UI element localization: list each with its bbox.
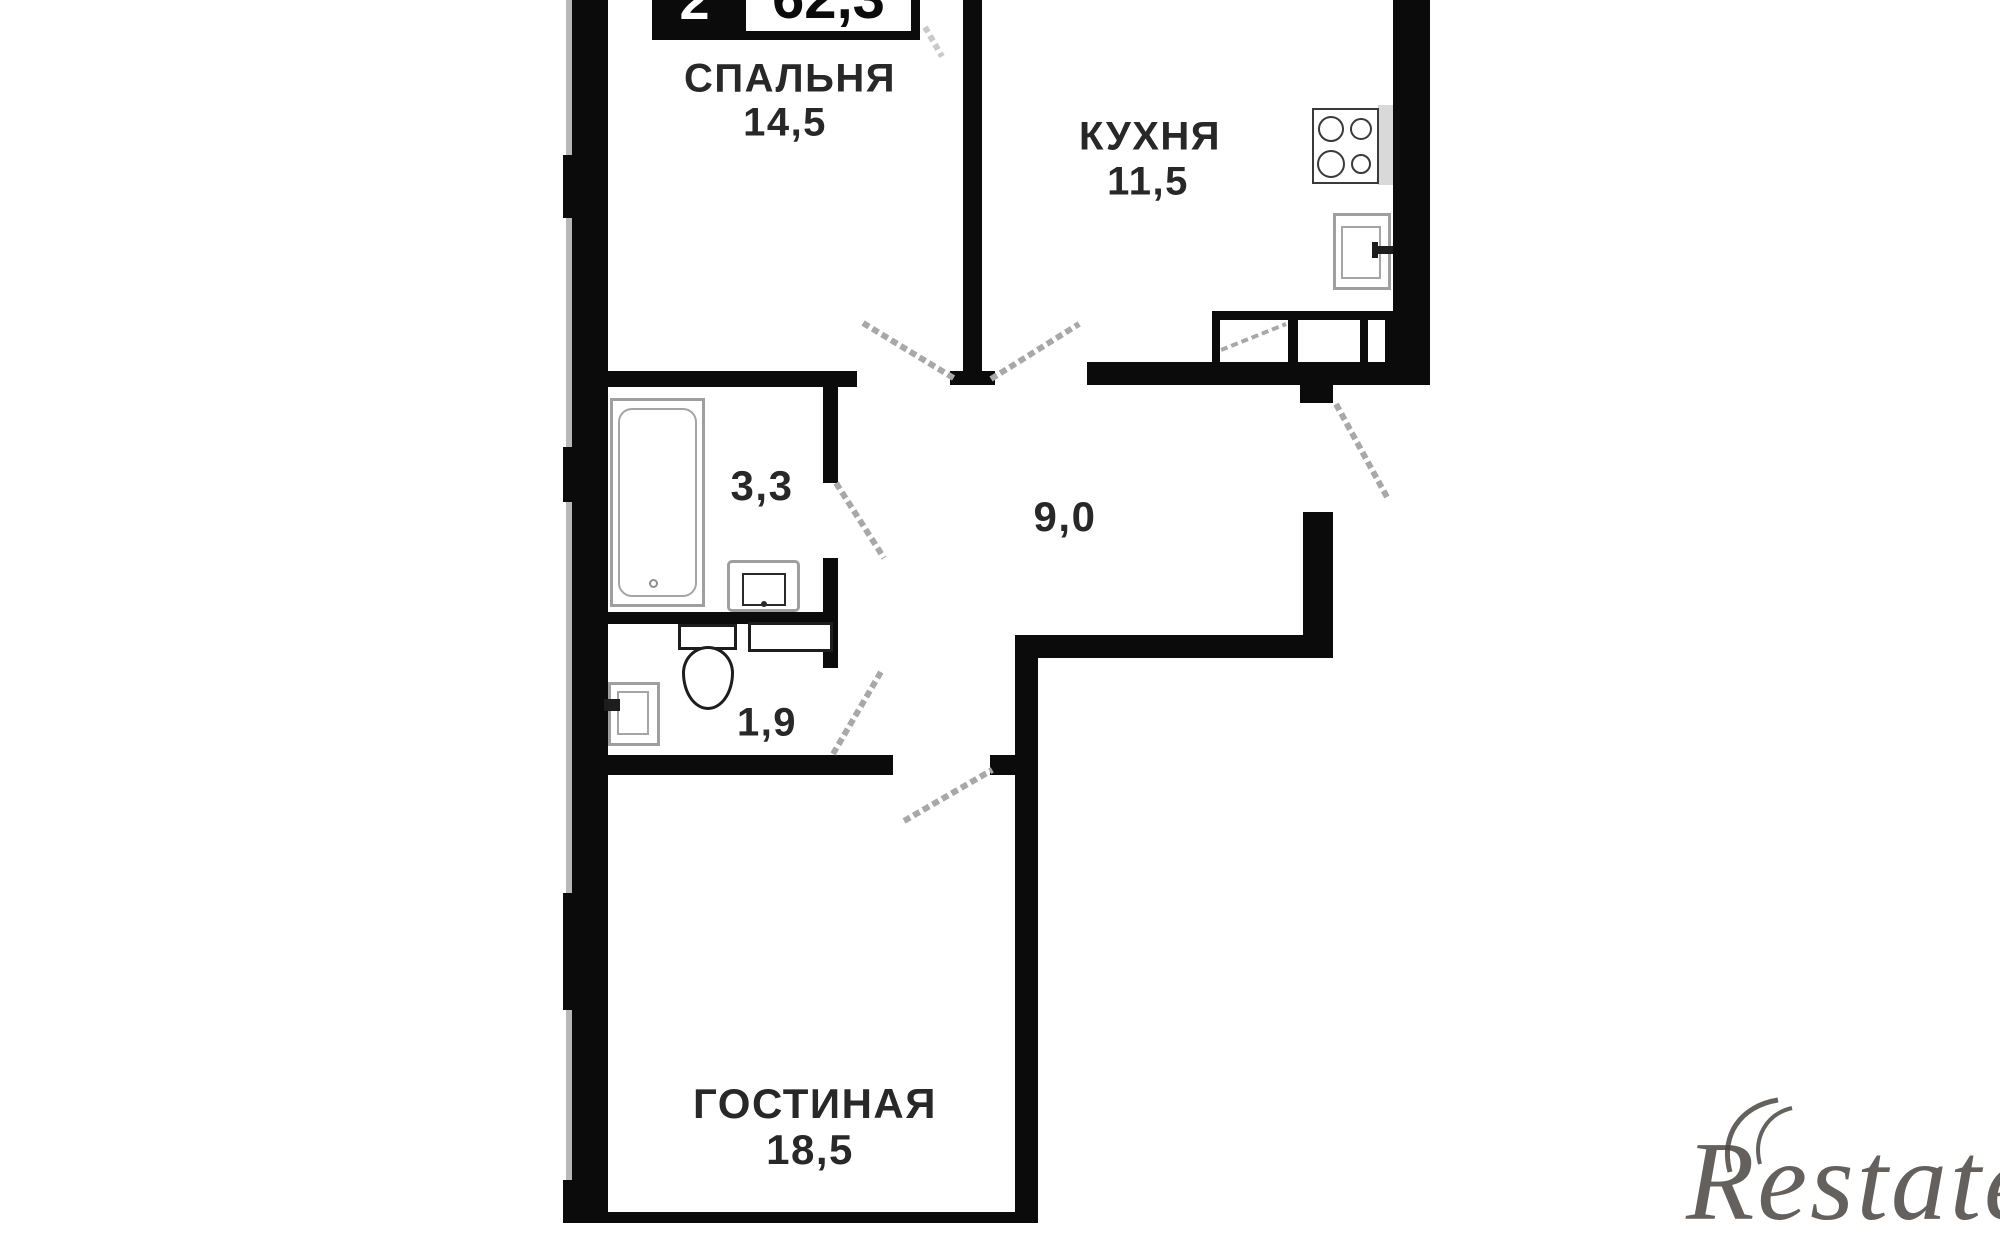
watermark-text: Restate [1686,1126,2000,1238]
bathroom-sink-icon [727,560,800,612]
wall-left-pilaster-1 [563,155,608,218]
wall-bedroom-kitchen-divider [963,0,982,373]
wardrobe-divider-3 [1360,320,1368,362]
kitchen-counter [1378,105,1393,185]
wall-left-pilaster-3 [563,893,608,1010]
living-door-leaf [902,767,993,823]
stove-icon [1312,108,1379,184]
bathroom-door-leaf [833,481,886,559]
wall-divider-foot [950,371,995,385]
bedroom-name-label: СПАЛЬНЯ [684,57,896,102]
wall-left-pilaster-2 [563,447,608,502]
wall-living-bottom [608,1212,1038,1223]
wall-living-right [1015,635,1038,1223]
living-area-label: 18,5 [766,1126,854,1174]
wardrobe-door-line [1220,322,1286,352]
bathroom-area-label: 3,3 [731,462,794,510]
living-name-label: ГОСТИНАЯ [693,1080,937,1128]
wardrobe-divider-1 [1212,311,1220,362]
wardrobe-top-line [1212,311,1393,320]
kitchen-area-label: 11,5 [1107,160,1189,205]
wall-kitchen-right [1393,0,1430,385]
entry-door-leaf [1333,403,1391,502]
wall-bath-right-upper [823,371,838,483]
badge-rooms-box: 2 [652,0,737,40]
kitchen-name-label: КУХНЯ [1079,115,1221,160]
badge-rooms-count: 2 [679,0,709,28]
badge-area-value: 62,3 [772,0,885,28]
floor-plan: 2 62,3 СПАЛЬНЯ 14,5 КУХНЯ 11,5 3,3 9,0 1… [0,0,2000,1223]
bedroom-area-label: 14,5 [743,101,827,146]
toilet-door-leaf [830,670,883,755]
washing-machine-icon [748,622,833,652]
wall-living-top-left [608,755,893,775]
kitchen-sink-faucet-icon-2 [1372,242,1378,258]
hallway-area-label: 9,0 [1034,493,1097,541]
wall-left-pilaster-4 [563,1180,608,1223]
wardrobe-divider-2 [1288,320,1298,362]
wardrobe-divider-4 [1385,320,1393,362]
small-door-mark [922,26,944,58]
wall-hall-right [1303,512,1333,658]
toilet-area-label: 1,9 [737,701,797,746]
toilet-sink-faucet-icon [604,699,620,711]
bedroom-door-leaf [861,320,956,381]
wall-bathroom-top [603,371,857,387]
toilet-bowl-icon [682,646,734,710]
badge-area-box: 62,3 [737,0,920,40]
kitchen-door-leaf [989,321,1080,381]
wall-hall-bottom [1038,635,1303,658]
entry-door-hinge-stub [1300,385,1333,403]
bathtub-icon [610,398,705,607]
wall-kitchen-bottom [1087,362,1430,385]
toilet-sink-icon [608,682,660,746]
